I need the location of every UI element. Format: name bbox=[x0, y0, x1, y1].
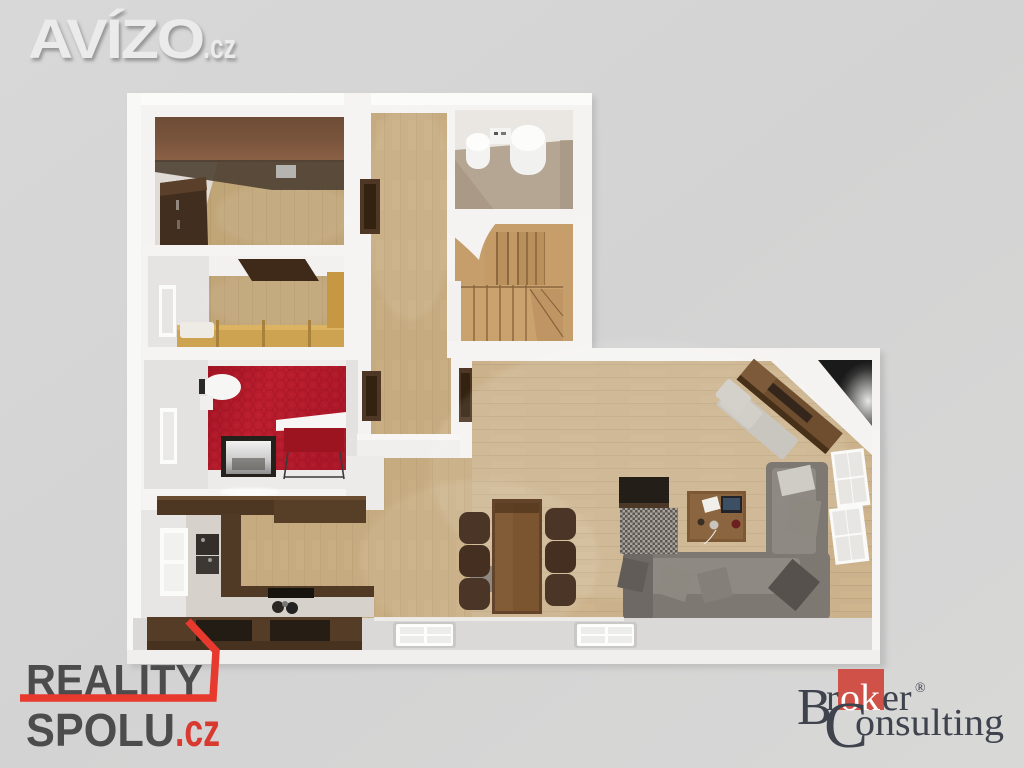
svg-text:.cz: .cz bbox=[203, 28, 236, 66]
svg-text:®: ® bbox=[915, 681, 926, 696]
svg-text:AVÍZO: AVÍZO bbox=[28, 7, 203, 70]
svg-text:.cz: .cz bbox=[175, 704, 220, 756]
svg-text:onsulting: onsulting bbox=[855, 702, 1004, 744]
svg-text:SPOLU: SPOLU bbox=[26, 704, 175, 756]
